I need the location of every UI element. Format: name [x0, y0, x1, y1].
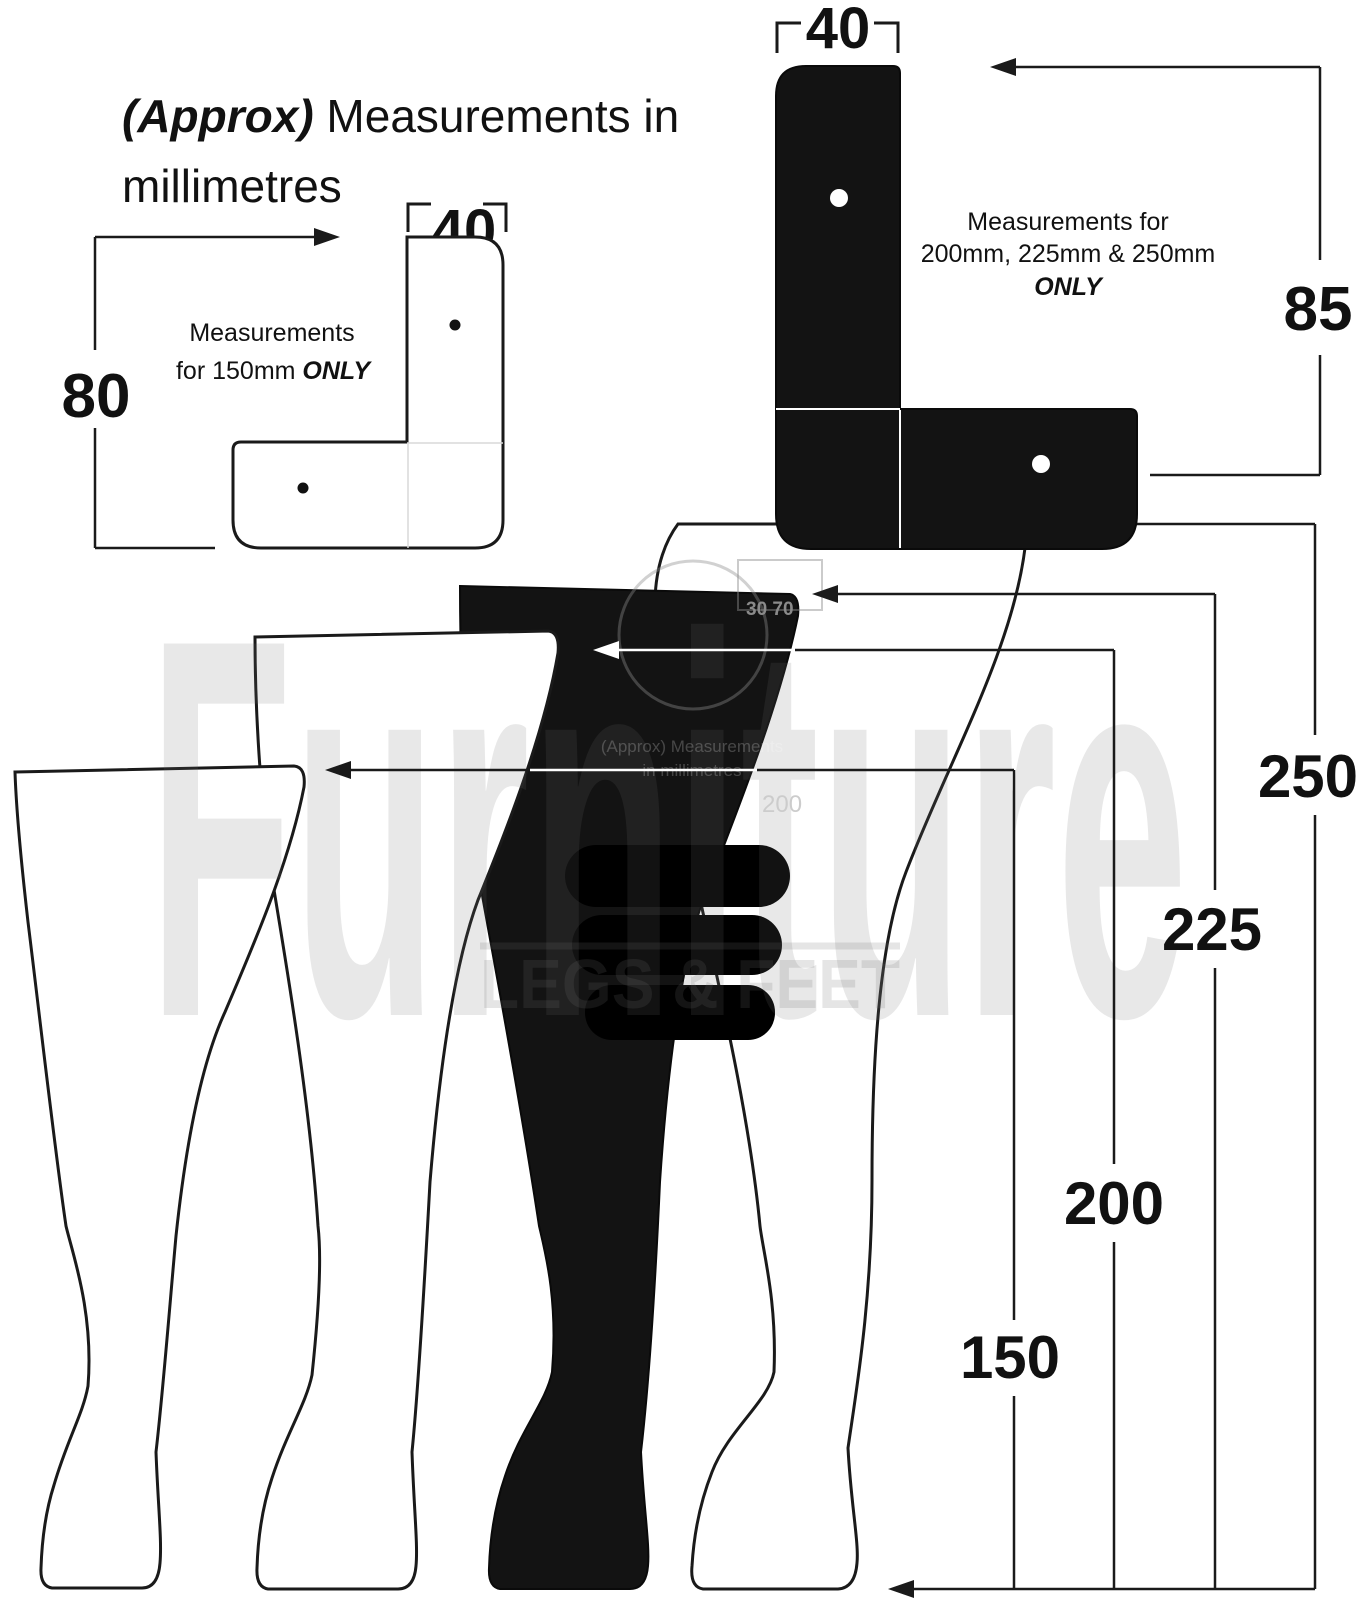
watermark-sub: LEGS & FEET [480, 945, 900, 1023]
page-title-approx: (Approx) [122, 90, 314, 142]
bracketL-width-label: 40 [806, 0, 871, 61]
bracketL-width-tick-left [777, 23, 801, 53]
bracketL-note-line2: 200mm, 225mm & 250mm [921, 240, 1216, 268]
bracket150-note-only: ONLY [302, 357, 372, 385]
bracket150-hole-bottom [298, 483, 309, 494]
diagram-canvas: Furniture LEGS & FEET 30 70 (Approx) Mea… [0, 0, 1365, 1600]
ghost-dim-label: 30 70 [746, 599, 794, 620]
bracketL-plate [776, 66, 1137, 549]
size-label-225: 225 [1162, 896, 1262, 963]
ghost-approx-line1: (Approx) Measurements [601, 737, 783, 756]
size-label-250: 250 [1258, 743, 1358, 810]
bracketL-hole-top [830, 189, 848, 207]
size-label-200: 200 [1064, 1170, 1164, 1237]
page-title-rest: Measurements in [314, 90, 680, 142]
product-measurement-diagram: Furniture LEGS & FEET 30 70 (Approx) Mea… [0, 0, 1365, 1600]
bracketL-width-tick-right [874, 23, 898, 53]
bracketL-note-only: ONLY [1034, 273, 1104, 301]
page-title-line1: (Approx) Measurements in [122, 90, 679, 142]
page-title-line2: millimetres [122, 160, 342, 212]
bracket150-note-for: for 150mm [176, 357, 302, 385]
ghost-size-200: 200 [762, 791, 802, 818]
bracket150-dim80-arrowhead [314, 228, 340, 246]
watermark-brand: Furniture [148, 527, 1188, 1130]
bracket150-hole-top [450, 320, 461, 331]
bracket150-note-line1: Measurements [189, 319, 354, 347]
bracket150-height-label: 80 [62, 362, 131, 431]
bracketL-note-line1: Measurements for [967, 208, 1168, 236]
bracket150-note-line2: for 150mm ONLY [176, 357, 372, 385]
bracket150-width-tick-left [408, 204, 431, 232]
bracketL-hole-bottom [1032, 455, 1050, 473]
bracket150-plate [233, 237, 503, 548]
size-label-150: 150 [960, 1324, 1060, 1391]
bracketL-height-label: 85 [1284, 275, 1353, 344]
